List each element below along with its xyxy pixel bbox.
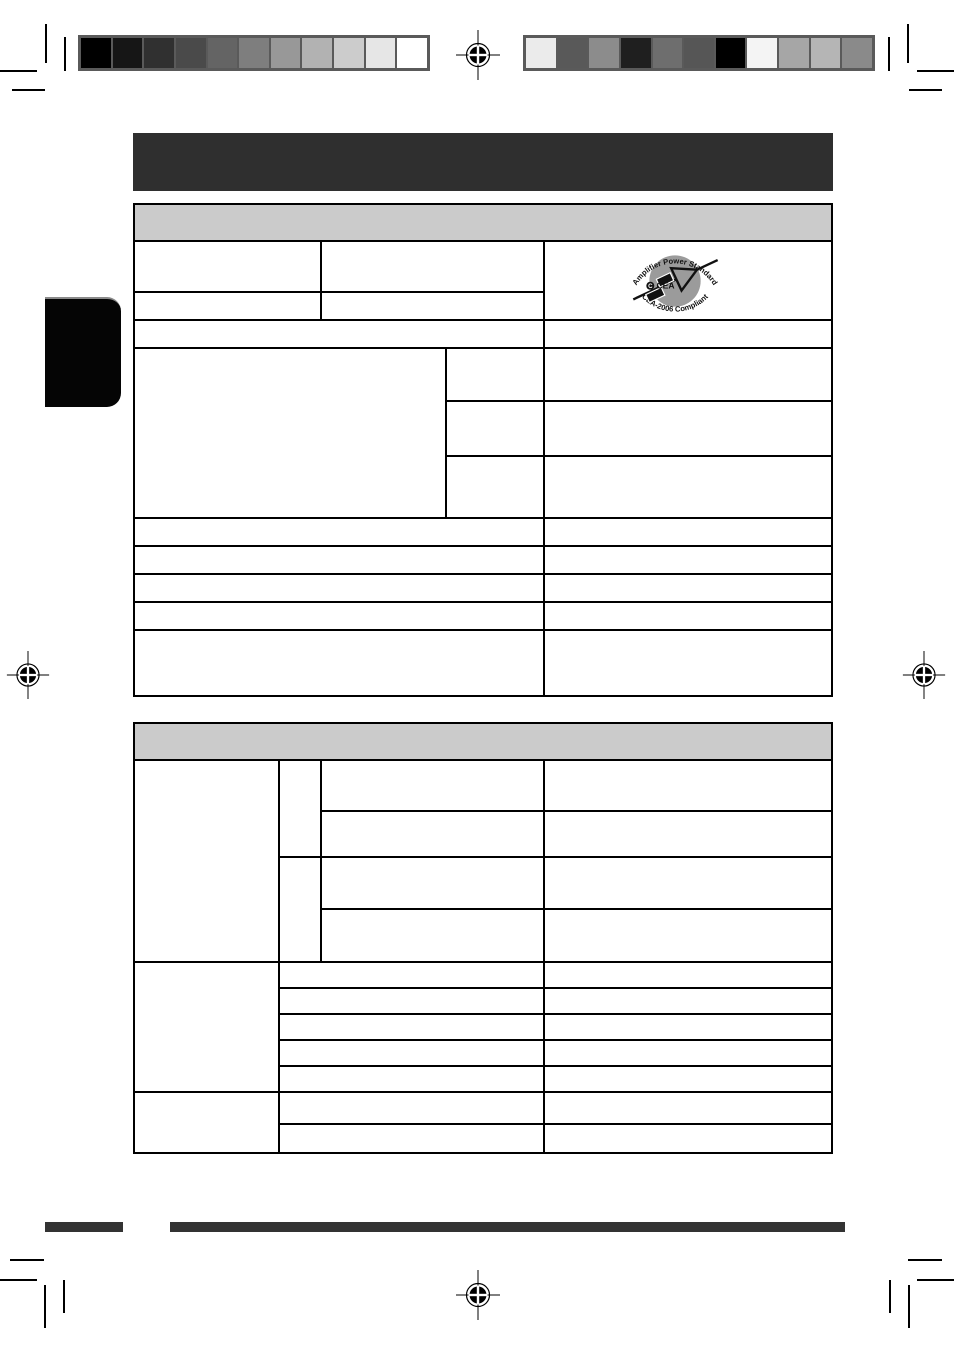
grid-line — [135, 573, 831, 575]
grid-line — [278, 1123, 831, 1125]
cea-mark-symbol: C — [648, 283, 653, 290]
trim-mark — [0, 1279, 37, 1281]
calibration-swatch — [716, 38, 746, 68]
grid-line — [135, 319, 831, 321]
calibration-bar-right — [523, 35, 875, 71]
table2-header-band — [135, 724, 831, 761]
calibration-swatch — [842, 38, 872, 68]
footer-rule-long — [170, 1222, 845, 1232]
grid-line — [445, 400, 831, 402]
trim-mark — [917, 1279, 954, 1281]
trim-mark — [908, 1259, 942, 1261]
grid-line — [135, 517, 831, 519]
grid-line — [445, 347, 447, 517]
calibration-bar-left — [78, 35, 430, 71]
grid-line — [278, 1039, 831, 1041]
trim-mark — [889, 1280, 891, 1313]
grid-line — [320, 759, 322, 961]
grid-line — [135, 545, 831, 547]
side-tab — [45, 297, 121, 407]
trim-mark — [10, 1259, 44, 1261]
calibration-swatch — [747, 38, 777, 68]
calibration-swatch — [113, 38, 143, 68]
cea-2006-logo: Amplifier Power Standard CEA-2006 Compli… — [616, 243, 734, 319]
registration-mark-right — [902, 651, 946, 699]
trim-mark — [12, 89, 45, 91]
grid-line — [135, 601, 831, 603]
spec-table-2 — [133, 722, 833, 1154]
registration-mark-left — [6, 651, 50, 699]
calibration-swatch — [397, 38, 427, 68]
calibration-swatch — [144, 38, 174, 68]
table1-header-band — [135, 205, 831, 242]
calibration-swatch — [334, 38, 364, 68]
registration-mark-bottom — [456, 1270, 500, 1320]
calibration-swatch — [208, 38, 238, 68]
grid-line — [320, 908, 831, 910]
trim-mark — [909, 89, 942, 91]
grid-line — [320, 810, 831, 812]
grid-line — [543, 240, 545, 695]
calibration-swatch — [589, 38, 619, 68]
calibration-swatch — [81, 38, 111, 68]
grid-line — [543, 759, 545, 1152]
trim-mark — [45, 24, 47, 63]
calibration-swatch — [302, 38, 332, 68]
trim-mark — [63, 1280, 65, 1313]
trim-mark — [44, 1285, 46, 1328]
trim-mark — [64, 37, 66, 71]
grid-line — [135, 291, 543, 293]
grid-line — [135, 629, 831, 631]
trim-mark — [0, 70, 37, 72]
grid-line — [278, 1013, 831, 1015]
footer-rule-short — [45, 1222, 123, 1232]
trim-mark — [917, 70, 954, 72]
calibration-swatch — [239, 38, 269, 68]
page-title-bar — [133, 133, 833, 191]
cea-mark-text: CEA — [656, 281, 674, 291]
spec-table-1: Amplifier Power Standard CEA-2006 Compli… — [133, 203, 833, 697]
grid-line — [135, 347, 831, 349]
grid-line — [278, 1065, 831, 1067]
registration-mark-top — [456, 30, 500, 80]
grid-line — [278, 856, 831, 858]
calibration-swatch — [558, 38, 588, 68]
trim-mark — [888, 37, 890, 71]
grid-line — [320, 240, 322, 319]
calibration-swatch — [271, 38, 301, 68]
grid-line — [445, 455, 831, 457]
manual-page: Amplifier Power Standard CEA-2006 Compli… — [0, 0, 954, 1351]
grid-line — [278, 987, 831, 989]
grid-line — [135, 1091, 831, 1093]
calibration-swatch — [176, 38, 206, 68]
calibration-swatch — [526, 38, 556, 68]
calibration-swatch — [684, 38, 714, 68]
calibration-swatch — [653, 38, 683, 68]
calibration-swatch — [621, 38, 651, 68]
trim-mark — [907, 24, 909, 63]
trim-mark — [908, 1285, 910, 1328]
calibration-swatch — [811, 38, 841, 68]
grid-line — [278, 759, 280, 1152]
calibration-swatch — [779, 38, 809, 68]
grid-line — [135, 961, 831, 963]
calibration-swatch — [366, 38, 396, 68]
